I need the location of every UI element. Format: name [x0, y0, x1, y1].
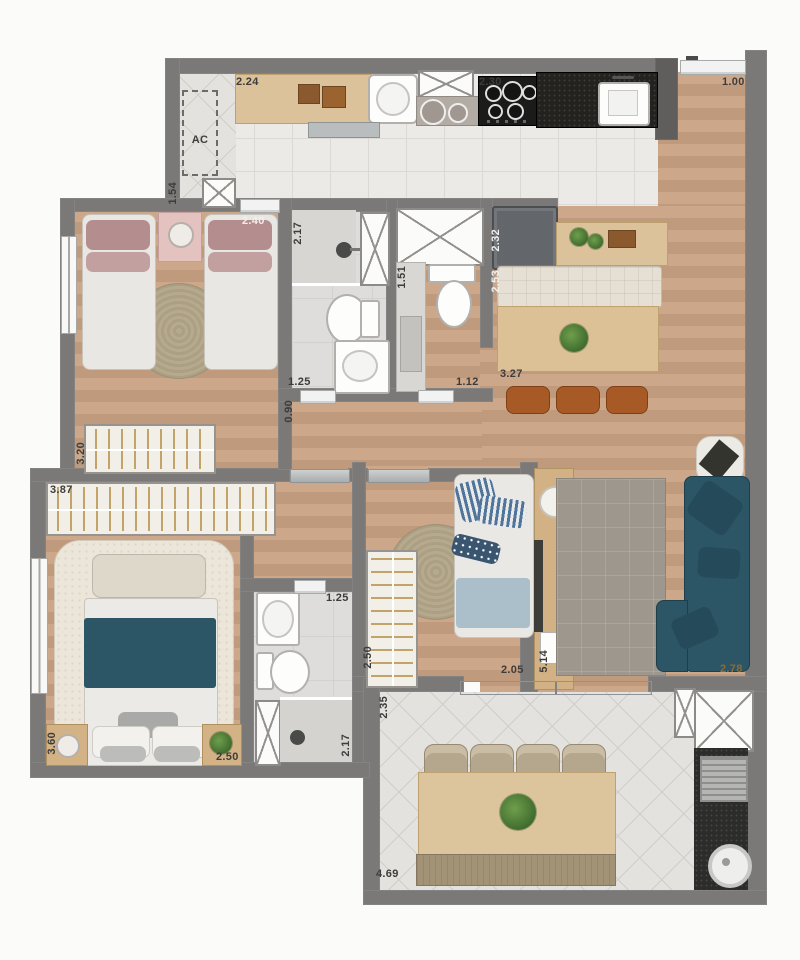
floor-plan: AC: [0, 0, 800, 960]
dimension-label: 2.17: [292, 222, 304, 245]
dimension-label: 2.78: [720, 663, 743, 675]
table-plant-icon: [560, 324, 588, 352]
window-master: [31, 558, 48, 694]
ensuite-door: [294, 580, 326, 594]
window-bedroom1: [61, 236, 77, 334]
toilet-tank-icon: [360, 300, 380, 338]
bedroom3-sliding-door: [368, 469, 430, 483]
dimension-label: 2.50: [216, 751, 239, 763]
wall-service-left: [165, 58, 180, 200]
stove-knobs-icon: [487, 120, 531, 123]
lamp-icon: [168, 222, 194, 248]
bath1-cabinet-box: [360, 212, 390, 286]
dimension-label: 2.32: [490, 229, 502, 252]
storage-box-icon: [322, 86, 346, 108]
tv-panel-icon: [534, 540, 543, 632]
closet-rail: [392, 552, 394, 686]
dimension-label: 2.30: [479, 76, 502, 88]
kitchen-upper-cabinet-box: [418, 70, 474, 98]
ac-label: AC: [192, 134, 209, 146]
dimension-label: 2.40: [242, 215, 265, 227]
dimension-label: 4.69: [376, 868, 399, 880]
dimension-label: 3.27: [500, 368, 523, 380]
living-rug: [556, 478, 666, 676]
dimension-label: 3.60: [46, 732, 58, 755]
sink-basin-icon: [342, 350, 378, 382]
terrace-duct-box: [674, 688, 696, 738]
master-closet: [46, 482, 276, 536]
toilet-bowl-icon: [270, 650, 310, 694]
sink-basin-icon: [262, 600, 294, 638]
range-hood-icon: [308, 122, 380, 138]
wall-master-right: [240, 530, 254, 770]
master-pillow: [100, 746, 146, 762]
dimension-label: 1.54: [167, 182, 179, 205]
master-bench: [92, 554, 206, 598]
burner-icon: [502, 81, 523, 102]
bath1-door: [300, 390, 336, 404]
sofa-cushion: [697, 547, 741, 580]
stool-icon: [606, 386, 648, 414]
wall-kitchen-partition: [655, 58, 678, 140]
plant-icon: [570, 228, 588, 246]
dimension-label: 1.12: [456, 376, 479, 388]
bowl-icon: [420, 99, 446, 125]
floor-hallway: [292, 400, 482, 470]
dimension-label: 5.14: [538, 650, 550, 673]
twin-bed-1-blanket: [86, 252, 150, 272]
dining-bench: [497, 266, 662, 308]
wall-right: [745, 50, 767, 905]
burner-icon: [507, 103, 524, 120]
closet-rail: [48, 509, 274, 511]
ac-unit-box: AC: [182, 90, 218, 176]
burner-icon: [488, 104, 503, 119]
dimension-label: 0.90: [283, 400, 295, 423]
terrace-bench: [416, 854, 616, 886]
stool-icon: [556, 386, 600, 414]
bedroom1-door: [240, 199, 280, 213]
laundry-sink-basin-icon: [376, 82, 410, 116]
master-suite-sliding-door: [290, 469, 350, 483]
ensuite-glass-partition: [280, 697, 352, 700]
plant-icon: [588, 234, 603, 249]
grill-knob-icon: [722, 858, 730, 866]
ac-condenser-icon: [700, 756, 748, 802]
cutting-board-icon: [298, 84, 320, 104]
single-bed-blanket: [456, 578, 530, 628]
dimension-label: 2.17: [340, 734, 352, 757]
dimension-label: 3.20: [75, 442, 87, 465]
bedroom1-closet: [84, 424, 216, 474]
burner-icon: [522, 85, 537, 100]
master-bed-blanket: [84, 618, 216, 688]
wc-cabinet-box: [396, 208, 484, 266]
service-duct-box: [202, 178, 236, 208]
shower-head-icon: [290, 730, 305, 745]
kitchen-sink-basin-icon: [608, 90, 638, 116]
table-plant-icon: [500, 794, 536, 830]
wc-sink-basin-icon: [400, 316, 422, 372]
lamp-icon: [56, 734, 80, 758]
dimension-label: 2.50: [362, 646, 374, 669]
terrace-shaft-box: [694, 690, 754, 752]
toilet-bowl-icon: [436, 280, 472, 328]
twin-bed-2-blanket: [208, 252, 272, 272]
twin-bed-1-pillow: [86, 220, 150, 250]
master-pillow: [154, 746, 200, 762]
closet-rail: [86, 449, 214, 451]
ensuite-cabinet-box: [255, 700, 281, 766]
tray-icon: [608, 230, 636, 248]
grill-icon: [708, 844, 752, 888]
entry-door: [680, 60, 746, 75]
faucet-icon: [612, 76, 634, 79]
stool-icon: [506, 386, 550, 414]
dimension-label: 1.00: [722, 76, 745, 88]
dimension-label: 2.24: [236, 76, 259, 88]
wc-door: [418, 390, 454, 404]
wall-bedroom1-right: [278, 198, 292, 470]
dimension-label: 2.53: [490, 270, 502, 293]
dimension-label: 2.05: [501, 664, 524, 676]
dimension-label: 2.35: [378, 696, 390, 719]
dimension-label: 3.87: [50, 484, 73, 496]
entry-door-handle-icon: [686, 56, 698, 60]
wall-terrace-bottom: [363, 890, 767, 905]
terrace-sliding-door: [460, 681, 652, 695]
dimension-label: 1.25: [288, 376, 311, 388]
dimension-label: 1.51: [396, 266, 408, 289]
dimension-label: 1.25: [326, 592, 349, 604]
bowl-icon: [448, 103, 468, 123]
